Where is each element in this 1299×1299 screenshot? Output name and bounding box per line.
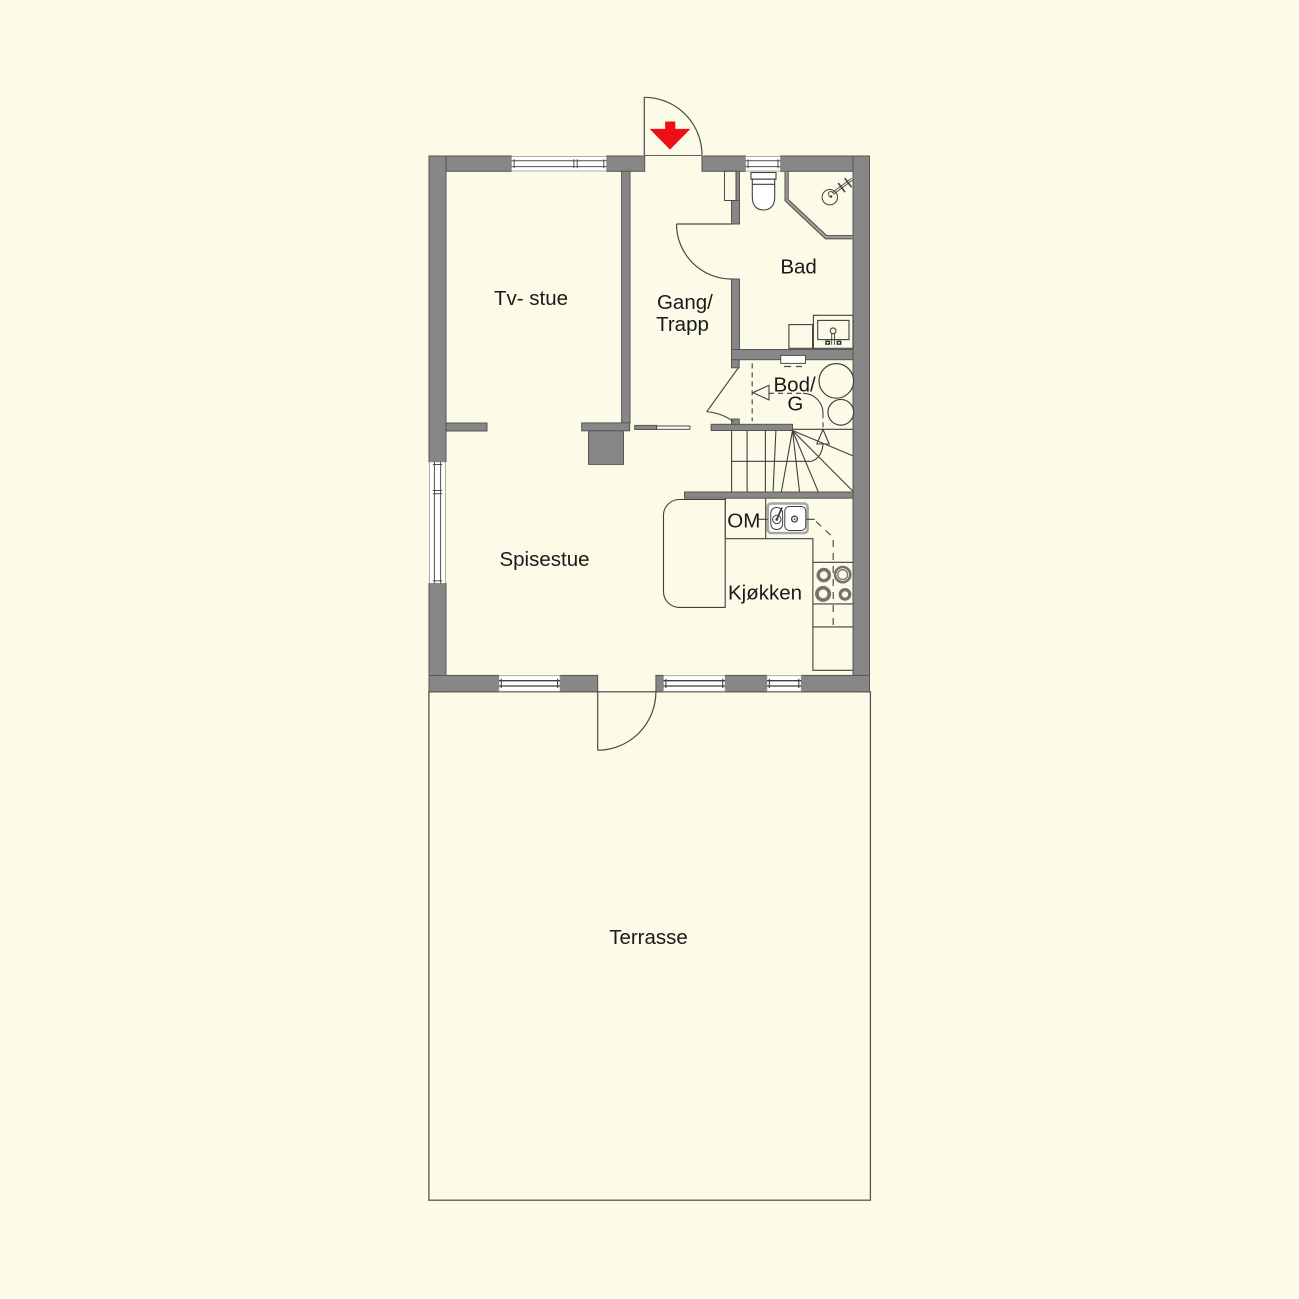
svg-text:OM: OM bbox=[727, 510, 760, 533]
svg-text:Trapp: Trapp bbox=[656, 313, 709, 336]
svg-text:Spisestue: Spisestue bbox=[499, 548, 589, 571]
svg-text:Kjøkken: Kjøkken bbox=[728, 581, 802, 604]
svg-text:Gang/: Gang/ bbox=[657, 291, 713, 314]
svg-text:Terrasse: Terrasse bbox=[609, 926, 688, 949]
svg-text:Bad: Bad bbox=[780, 256, 816, 279]
svg-text:G: G bbox=[787, 392, 803, 415]
svg-text:Tv- stue: Tv- stue bbox=[494, 287, 568, 310]
